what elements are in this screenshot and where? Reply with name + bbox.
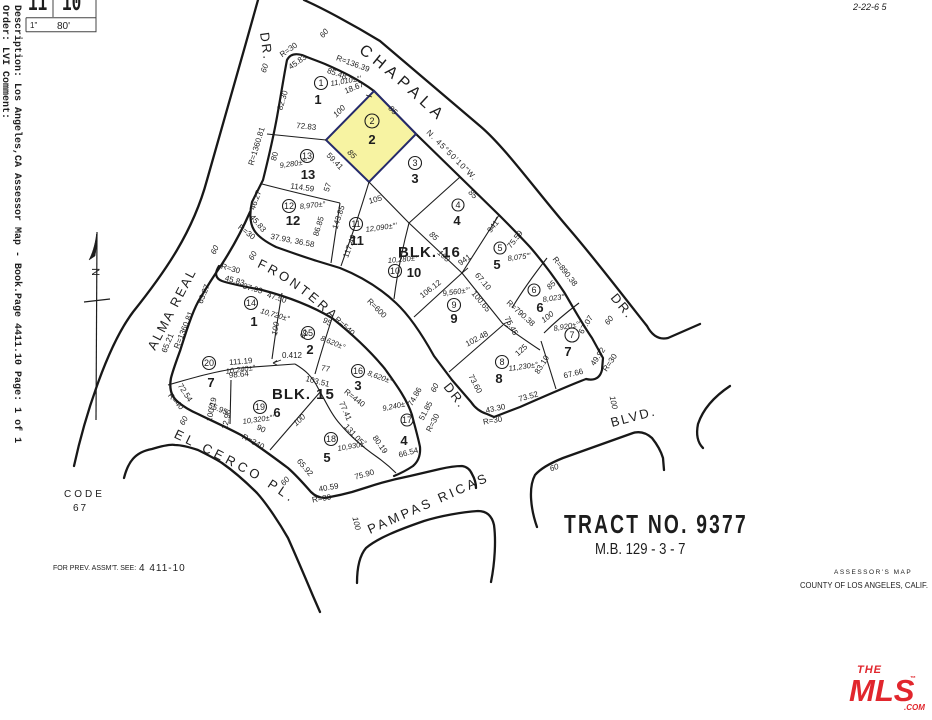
svg-text:17: 17 (402, 415, 412, 425)
svg-text:CODE: CODE (64, 489, 105, 500)
svg-text:N: N (89, 268, 101, 276)
svg-text:8: 8 (495, 371, 502, 386)
svg-text:20: 20 (204, 358, 214, 368)
svg-text:10: 10 (62, 0, 81, 18)
svg-text:6: 6 (273, 405, 280, 420)
svg-text:0.412: 0.412 (282, 351, 303, 360)
svg-text:13: 13 (301, 167, 315, 182)
svg-text:5: 5 (323, 450, 330, 465)
svg-text:4: 4 (455, 200, 460, 210)
svg-text:19: 19 (255, 402, 265, 412)
svg-text:12: 12 (286, 213, 300, 228)
svg-text:9: 9 (450, 311, 457, 326)
svg-text:8: 8 (499, 357, 504, 367)
svg-text:5: 5 (497, 243, 502, 253)
svg-text:BLK. 15: BLK. 15 (272, 386, 335, 403)
svg-text:9: 9 (451, 300, 456, 310)
svg-text:3: 3 (411, 171, 418, 186)
svg-text:FOR PREV. ASSM'T. SEE:: FOR PREV. ASSM'T. SEE: (53, 565, 136, 572)
svg-text:10: 10 (390, 266, 400, 276)
svg-text:Order: LVI Comment:: Order: LVI Comment: (0, 5, 11, 119)
svg-text:BLK. 16: BLK. 16 (398, 244, 461, 261)
svg-text:4: 4 (400, 433, 408, 448)
svg-text:3: 3 (354, 378, 361, 393)
svg-text:7: 7 (564, 344, 571, 359)
svg-text:4 411-10: 4 411-10 (139, 563, 186, 574)
svg-text:6: 6 (531, 285, 536, 295)
svg-text:Description: Los Angeles,CA As: Description: Los Angeles,CA Assessor Map… (11, 5, 23, 443)
svg-text:11: 11 (351, 219, 360, 229)
svg-text:TRACT NO. 9377: TRACT NO. 9377 (564, 509, 748, 539)
svg-text:5: 5 (493, 257, 500, 272)
svg-text:1": 1" (30, 21, 37, 30)
svg-text:11: 11 (28, 0, 47, 18)
svg-text:COUNTY OF LOS ANGELES, CALIF.: COUNTY OF LOS ANGELES, CALIF. (800, 580, 928, 590)
svg-text:7: 7 (207, 375, 214, 390)
svg-text:14: 14 (246, 298, 256, 308)
svg-text:ASSESSOR'S MAP: ASSESSOR'S MAP (834, 569, 912, 576)
svg-text:2: 2 (368, 132, 375, 147)
svg-text:18: 18 (326, 434, 336, 444)
svg-text:2-22-6 5: 2-22-6 5 (852, 2, 888, 12)
svg-text:2: 2 (369, 116, 374, 126)
svg-text:12: 12 (284, 201, 294, 211)
svg-text:™: ™ (910, 675, 916, 682)
svg-text:80': 80' (57, 21, 70, 32)
svg-text:.COM: .COM (904, 703, 925, 712)
svg-text:4: 4 (453, 213, 461, 228)
svg-text:67: 67 (73, 503, 88, 514)
svg-text:2: 2 (306, 342, 313, 357)
svg-text:1: 1 (318, 78, 323, 88)
svg-text:98.64: 98.64 (228, 369, 249, 380)
svg-text:7: 7 (569, 330, 574, 340)
svg-text:1: 1 (314, 92, 321, 107)
svg-text:M.B. 129 - 3 - 7: M.B. 129 - 3 - 7 (595, 541, 685, 558)
svg-text:10: 10 (407, 265, 421, 280)
svg-text:1: 1 (250, 314, 257, 329)
svg-text:3: 3 (412, 158, 417, 168)
svg-text:16: 16 (353, 366, 363, 376)
